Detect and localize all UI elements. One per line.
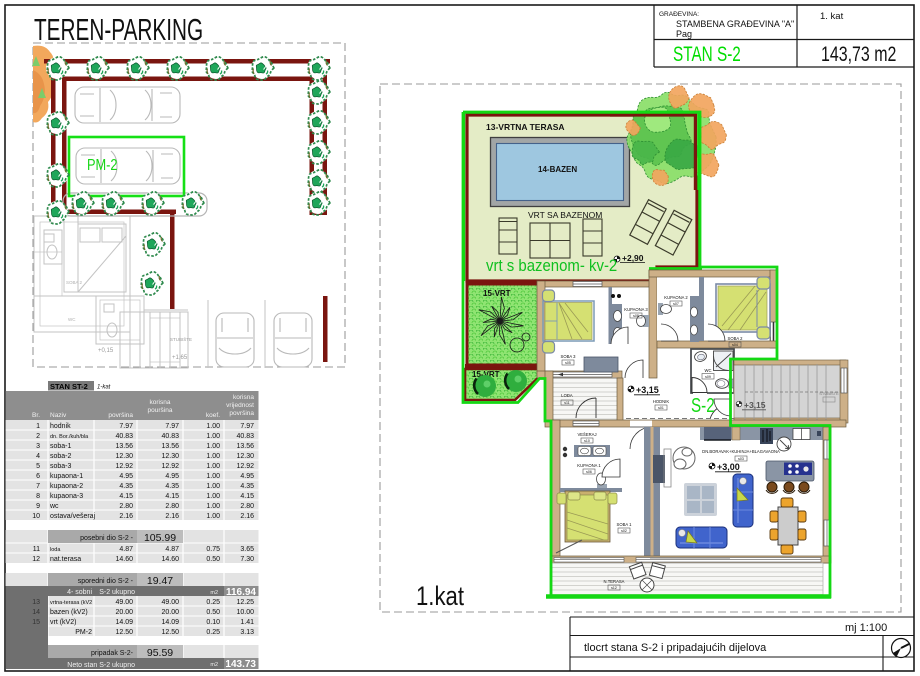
svg-text:0.75: 0.75 [206,546,220,553]
svg-text:1.00: 1.00 [206,503,220,510]
svg-text:40.83: 40.83 [236,433,254,440]
svg-text:1: 1 [36,423,40,430]
svg-text:korisna: korisna [150,399,171,406]
svg-text:korisna: korisna [233,394,254,401]
svg-text:loda: loda [50,547,61,553]
svg-text:1.00: 1.00 [206,433,220,440]
svg-text:19.47: 19.47 [147,575,173,587]
svg-text:14-BAZEN: 14-BAZEN [538,165,577,174]
svg-text:s09: s09 [705,375,711,379]
svg-text:4.35: 4.35 [165,483,179,490]
svg-text:Neto stan S-2 ukupno: Neto stan S-2 ukupno [67,662,135,669]
svg-text:20.00: 20.00 [161,609,179,616]
svg-text:49.00: 49.00 [161,599,179,606]
svg-text:s08: s08 [633,314,639,318]
svg-text:7: 7 [36,483,40,490]
svg-text:12.25: 12.25 [236,599,254,606]
svg-text:KUPAONA 1: KUPAONA 1 [577,463,601,468]
svg-text:7.97: 7.97 [119,423,133,430]
svg-text:kupaona-1: kupaona-1 [50,473,83,480]
svg-text:0.25: 0.25 [206,629,220,636]
svg-text:wc: wc [49,503,59,510]
svg-text:1-kat: 1-kat [97,385,111,391]
svg-text:4.35: 4.35 [119,483,133,490]
svg-text:Br.: Br. [32,412,40,419]
svg-text:hodnik: hodnik [50,423,71,430]
svg-text:4- sobni: 4- sobni [67,589,92,596]
svg-text:5: 5 [36,463,40,470]
svg-text:posebni dio S-2 -: posebni dio S-2 - [80,535,134,542]
svg-text:s12: s12 [611,586,617,590]
svg-text:Pag: Pag [676,29,692,39]
svg-text:VEŠERAJ: VEŠERAJ [577,432,596,437]
svg-text:2.80: 2.80 [165,503,179,510]
svg-text:3: 3 [36,443,40,450]
svg-text:4.95: 4.95 [240,473,254,480]
svg-text:vrijednost: vrijednost [226,402,254,409]
svg-text:12.50: 12.50 [161,629,179,636]
svg-text:nat.terasa: nat.terasa [50,556,81,563]
svg-text:13-VRTNA TERASA: 13-VRTNA TERASA [486,122,565,132]
svg-text:LOĐA: LOĐA [561,393,573,398]
svg-text:soba-1: soba-1 [50,443,72,450]
svg-text:12.92: 12.92 [236,463,254,470]
svg-text:2: 2 [36,433,40,440]
svg-text:tlocrt stana S-2 i pripadajući: tlocrt stana S-2 i pripadajućih dijelova [584,642,767,654]
svg-text:s02: s02 [621,529,627,533]
svg-text:N.TERASA: N.TERASA [604,579,625,584]
svg-text:9: 9 [36,503,40,510]
svg-text:STUBIŠTE: STUBIŠTE [819,391,839,396]
svg-text:SOBA 1: SOBA 1 [617,522,633,527]
svg-text:12: 12 [32,556,40,563]
svg-text:WC: WC [68,317,76,322]
svg-text:4.87: 4.87 [165,546,179,553]
svg-text:12.92: 12.92 [161,463,179,470]
svg-text:Naziv: Naziv [50,412,67,419]
svg-text:1.00: 1.00 [206,473,220,480]
svg-text:11: 11 [33,546,40,553]
svg-text:4.95: 4.95 [165,473,179,480]
svg-text:1.00: 1.00 [206,463,220,470]
svg-text:+3,15: +3,15 [744,400,766,410]
svg-text:40.83: 40.83 [115,433,133,440]
svg-text:STAN S-2: STAN S-2 [673,42,741,66]
svg-text:STUBIŠTE: STUBIŠTE [170,336,192,342]
svg-text:m2: m2 [210,662,218,668]
svg-text:1.00: 1.00 [206,423,220,430]
svg-text:116.94: 116.94 [226,587,256,598]
svg-text:+3,00: +3,00 [717,462,740,472]
svg-text:kupaona-3: kupaona-3 [50,493,83,500]
svg-text:KUPAONA 3: KUPAONA 3 [624,307,648,312]
svg-text:1.00: 1.00 [206,443,220,450]
svg-text:SOBA 3: SOBA 3 [561,354,577,359]
svg-text:1.00: 1.00 [206,453,220,460]
svg-text:s01: s01 [658,406,664,410]
svg-text:PM-2: PM-2 [87,157,118,175]
svg-text:7.30: 7.30 [240,556,254,563]
svg-text:1. kat: 1. kat [820,11,844,22]
svg-text:2.16: 2.16 [240,513,254,520]
svg-text:m2: m2 [210,590,218,596]
svg-text:10: 10 [32,513,40,520]
svg-text:soba-2: soba-2 [50,453,72,460]
svg-text:49.00: 49.00 [115,599,133,606]
svg-text:12.30: 12.30 [115,453,133,460]
svg-text:1.00: 1.00 [206,493,220,500]
svg-text:14: 14 [32,609,40,616]
svg-text:15: 15 [32,619,40,626]
svg-text:pouršina: pouršina [148,407,173,414]
svg-text:+0,15: +0,15 [98,348,114,354]
svg-text:pripadak S-2-: pripadak S-2- [91,650,134,657]
svg-text:10.00: 10.00 [236,609,254,616]
svg-text:4.15: 4.15 [165,493,179,500]
svg-text:105.99: 105.99 [144,532,176,544]
svg-text:dn. Bor./kuh/bla: dn. Bor./kuh/bla [50,434,89,440]
svg-text:15-VRT: 15-VRT [483,289,511,298]
svg-text:vrt (kV2): vrt (kV2) [50,619,76,626]
svg-text:površina: površina [108,412,133,419]
svg-text:S-2 ukupno: S-2 ukupno [99,589,135,596]
svg-text:13: 13 [32,599,40,606]
svg-text:3.13: 3.13 [240,629,254,636]
svg-text:vrt s bazenom- kv-2: vrt s bazenom- kv-2 [486,257,617,275]
svg-text:kupaona-2: kupaona-2 [50,483,83,490]
svg-text:+1,65: +1,65 [172,355,188,361]
svg-text:vrtna-terasa (kV2: vrtna-terasa (kV2 [50,600,92,606]
svg-text:2.16: 2.16 [165,513,179,520]
svg-text:12.30: 12.30 [161,453,179,460]
svg-text:2.16: 2.16 [119,513,133,520]
svg-text:soba-3: soba-3 [50,463,72,470]
svg-text:mj 1:100: mj 1:100 [845,622,887,634]
svg-text:+3,15: +3,15 [636,385,659,395]
svg-text:s10: s10 [584,439,590,443]
svg-text:14.09: 14.09 [115,619,133,626]
svg-text:12.30: 12.30 [236,453,254,460]
svg-text:s06: s06 [586,470,592,474]
svg-text:13.56: 13.56 [115,443,133,450]
svg-text:1.00: 1.00 [206,483,220,490]
svg-text:SOBA 2: SOBA 2 [66,280,83,285]
svg-text:ostava/vešeraj: ostava/vešeraj [50,513,96,520]
svg-text:WC: WC [705,368,712,373]
svg-text:TEREN-PARKING: TEREN-PARKING [34,12,203,47]
svg-text:s11: s11 [564,401,569,405]
svg-text:1.41: 1.41 [240,619,254,626]
svg-text:1.kat: 1.kat [416,582,464,612]
svg-text:7.97: 7.97 [165,423,179,430]
svg-text:KUPAONA 2: KUPAONA 2 [664,295,688,300]
svg-text:8: 8 [36,493,40,500]
svg-text:površina: površina [229,410,254,417]
svg-text:SOBA 2: SOBA 2 [728,336,744,341]
svg-text:2.80: 2.80 [119,503,133,510]
svg-text:PM-2: PM-2 [75,629,92,636]
svg-text:0.10: 0.10 [206,619,220,626]
svg-text:3.65: 3.65 [240,546,254,553]
svg-text:4.15: 4.15 [119,493,133,500]
svg-text:sporedni dio S-2 -: sporedni dio S-2 - [78,578,134,585]
svg-text:bazen (kV2): bazen (kV2) [50,609,88,616]
svg-text:14.09: 14.09 [161,619,179,626]
svg-text:+2,90: +2,90 [622,253,644,263]
svg-text:20.00: 20.00 [115,609,133,616]
svg-text:4.15: 4.15 [240,493,254,500]
svg-text:4.35: 4.35 [240,483,254,490]
svg-text:4.87: 4.87 [119,546,133,553]
svg-text:s05: s05 [565,361,571,365]
svg-text:S-2: S-2 [691,394,715,417]
svg-text:s03: s03 [738,457,744,461]
svg-text:40.83: 40.83 [161,433,179,440]
svg-text:0.25: 0.25 [206,599,220,606]
svg-text:7.97: 7.97 [240,423,254,430]
svg-text:95.59: 95.59 [147,647,173,659]
svg-text:6: 6 [36,473,40,480]
svg-text:143,73 m2: 143,73 m2 [821,42,896,66]
svg-text:s04: s04 [732,343,738,347]
svg-text:DN.BORAVAK+KUHINJA+BLAGAVAONA: DN.BORAVAK+KUHINJA+BLAGAVAONA [702,449,780,454]
svg-text:14.60: 14.60 [115,556,133,563]
svg-text:0.50: 0.50 [206,556,220,563]
svg-text:STAMBENA GRAĐEVINA "A": STAMBENA GRAĐEVINA "A" [676,19,794,29]
svg-text:14.60: 14.60 [161,556,179,563]
svg-text:13.56: 13.56 [161,443,179,450]
svg-text:1.00: 1.00 [206,513,220,520]
svg-text:koef.: koef. [206,412,220,419]
svg-text:12.92: 12.92 [115,463,133,470]
svg-text:2.80: 2.80 [240,503,254,510]
svg-text:GRAĐEVINA:: GRAĐEVINA: [659,11,699,18]
svg-text:HODNIK: HODNIK [653,399,669,404]
svg-text:4.95: 4.95 [119,473,133,480]
svg-text:0.50: 0.50 [206,609,220,616]
svg-text:13.56: 13.56 [236,443,254,450]
svg-text:143.73: 143.73 [225,659,256,670]
svg-text:12.50: 12.50 [115,629,133,636]
svg-text:s07: s07 [673,302,679,306]
svg-text:STAN ST-2: STAN ST-2 [50,382,88,391]
svg-text:4: 4 [36,453,40,460]
